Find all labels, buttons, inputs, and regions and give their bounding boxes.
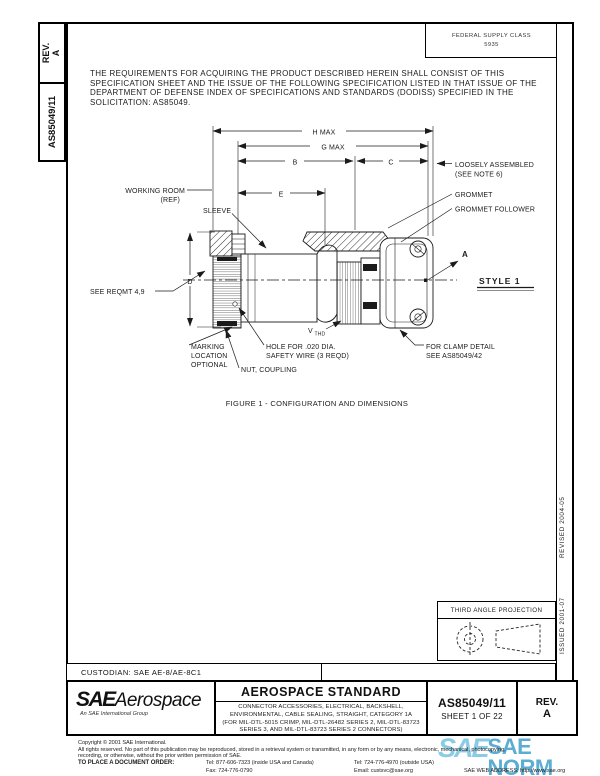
sidebar-doc-box: AS85049/11 xyxy=(38,82,66,162)
custodian-row: CUSTODIAN: SAE AE-8/AE-8C1 xyxy=(66,663,556,680)
connector-body xyxy=(210,231,433,328)
email-address: Email: custsvc@sae.org xyxy=(354,768,413,774)
intro-line: THE REQUIREMENTS FOR ACQUIRING THE PRODU… xyxy=(90,69,537,79)
rev-value: A xyxy=(543,708,551,720)
intro-line: SPECIFICATION SHEET AND THE ISSUE OF THE… xyxy=(90,79,537,89)
third-angle-projection-box: THIRD ANGLE PROJECTION xyxy=(437,601,556,661)
label-nut-coupling: NUT, COUPLING xyxy=(241,367,297,374)
label-grommet-follower: GROMMET FOLLOWER xyxy=(455,207,535,214)
label-marking-location: LOCATION xyxy=(191,353,227,360)
sheet-number: SHEET 1 OF 22 xyxy=(441,712,503,721)
projection-symbol xyxy=(438,619,554,659)
label-v-thd: V xyxy=(308,328,313,335)
dim-c: C xyxy=(388,160,393,167)
title-block: SAE Aerospace An SAE International Group… xyxy=(66,680,578,736)
label-v-thd-sub: THD xyxy=(315,332,326,338)
sae-logo-cell: SAE Aerospace An SAE International Group xyxy=(68,682,214,734)
custodian-divider xyxy=(321,664,322,680)
fsc-title: FEDERAL SUPPLY CLASS xyxy=(452,32,531,41)
projection-title: THIRD ANGLE PROJECTION xyxy=(438,602,555,619)
label-safety-wire: SAFETY WIRE (3 REQD) xyxy=(266,353,349,360)
label-sleeve: SLEEVE xyxy=(203,208,231,215)
custodian-text: CUSTODIAN: SAE AE-8/AE-8C1 xyxy=(67,668,201,677)
label-hole: HOLE FOR .020 DIA. xyxy=(266,344,336,351)
document-number-cell: AS85049/11 SHEET 1 OF 22 xyxy=(426,682,516,734)
revised-date: REVISED 2004-05 xyxy=(559,496,566,558)
rev-label: REV. xyxy=(536,697,558,708)
federal-supply-class-box: FEDERAL SUPPLY CLASS 5935 xyxy=(425,24,557,58)
tel-inside: Tel: 877-606-7323 (inside USA and Canada… xyxy=(206,760,314,766)
document-page: REV. A AS85049/11 ISSUED 2001-07 REVISED… xyxy=(0,0,600,776)
footer: Copyright © 2001 SAE International. All … xyxy=(66,740,578,776)
label-working-room: WORKING ROOM xyxy=(125,188,185,195)
aerospace-logo-text: Aerospace xyxy=(115,691,201,710)
dim-g-max: G MAX xyxy=(321,145,344,152)
dim-h-max: H MAX xyxy=(313,130,336,137)
standard-description-line: CONNECTOR ACCESSORIES, ELECTRICAL, BACKS… xyxy=(216,704,426,712)
copyright-line: Copyright © 2001 SAE International. xyxy=(78,740,167,746)
standard-description-line: (FOR MIL-DTL-5015 CRIMP, MIL-DTL-26482 S… xyxy=(216,720,426,728)
label-see-reqmt: SEE REQMT 4,9 xyxy=(90,289,145,296)
label-see-note-6: (SEE NOTE 6) xyxy=(455,172,503,179)
web-address: SAE WEB ADDRESS: http://www.sae.org xyxy=(464,768,565,774)
dim-b: B xyxy=(293,160,298,167)
sae-logo-subtitle: An SAE International Group xyxy=(80,711,214,717)
aerospace-standard-heading: AEROSPACE STANDARD xyxy=(216,682,426,702)
fsc-value: 5935 xyxy=(484,41,499,50)
rights-line-1: All rights reserved. No part of this pub… xyxy=(78,747,506,753)
document-number: AS85049/11 xyxy=(438,696,506,710)
label-clamp-detail: FOR CLAMP DETAIL xyxy=(426,344,495,351)
label-style-1: STYLE 1 xyxy=(479,276,520,286)
tel-outside: Tel: 724-776-4970 (outside USA) xyxy=(354,760,434,766)
standard-description-line: SERIES 3, AND MIL-DTL-83723 SERIES 2 CON… xyxy=(216,727,426,735)
sae-logo: SAE xyxy=(76,689,115,710)
standard-description-line: ENVIRONMENTAL, CABLE SEALING, STRAIGHT, … xyxy=(216,712,426,720)
label-clamp-ref: SEE AS85049/42 xyxy=(426,353,482,360)
dim-e: E xyxy=(279,192,284,199)
sidebar-rev-box: REV. A xyxy=(38,22,66,84)
order-label: TO PLACE A DOCUMENT ORDER: xyxy=(78,760,174,766)
intro-line: DEPARTMENT OF DEFENSE INDEX OF SPECIFICA… xyxy=(90,88,537,98)
rights-line-2: recording, or otherwise, without the pri… xyxy=(78,753,242,759)
issued-date: ISSUED 2001-07 xyxy=(559,597,566,654)
label-marking: MARKING xyxy=(191,344,225,351)
intro-line: SOLICITATION: AS85049. xyxy=(90,98,537,108)
sidebar-rev-value: A xyxy=(52,50,62,57)
standard-title-cell: AEROSPACE STANDARD CONNECTOR ACCESSORIES… xyxy=(214,682,426,734)
label-loosely-assembled: LOOSELY ASSEMBLED xyxy=(455,162,534,169)
sidebar-doc-number: AS85049/11 xyxy=(47,96,58,148)
figure-caption: FIGURE 1 - CONFIGURATION AND DIMENSIONS xyxy=(226,399,408,408)
label-view-a: A xyxy=(462,250,468,259)
fax-number: Fax: 724-776-0790 xyxy=(206,768,252,774)
label-grommet: GROMMET xyxy=(455,192,493,199)
right-margin-strip xyxy=(556,22,557,680)
requirements-paragraph: THE REQUIREMENTS FOR ACQUIRING THE PRODU… xyxy=(90,69,537,108)
label-marking-optional: OPTIONAL xyxy=(191,362,228,369)
label-working-room-ref: (REF) xyxy=(161,197,180,204)
revision-cell: REV. A xyxy=(516,682,576,734)
figure-1-drawing: H MAX G MAX B C E D xyxy=(85,118,550,418)
